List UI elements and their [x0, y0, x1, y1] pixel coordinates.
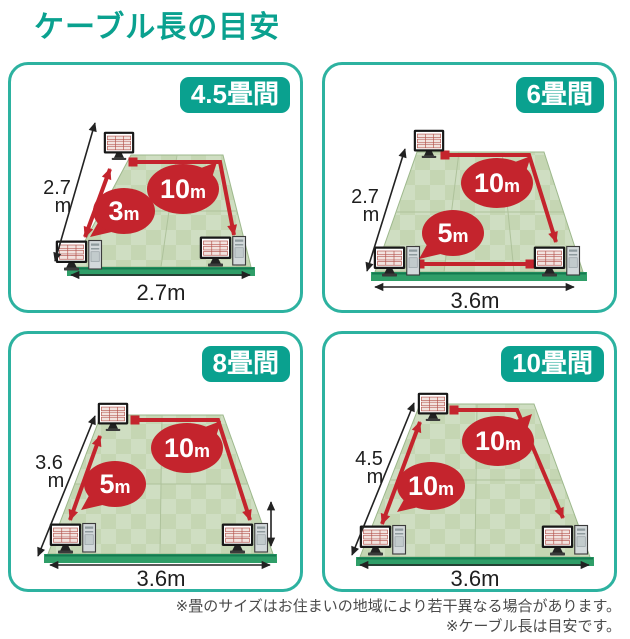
left-dimension-unit: m: [48, 470, 65, 492]
left-dimension-unit: m: [363, 204, 380, 226]
bottom-dimension-label: 3.6m: [451, 288, 500, 310]
panel-10-tatami: 10畳間 10m 10m 4.5 m: [322, 331, 617, 592]
room-size-label: 8畳間: [213, 348, 279, 378]
panel-6-tatami: 6畳間 5m 10m 2.7 m: [322, 62, 617, 313]
room-size-badge: 6畳間: [516, 77, 604, 113]
room-size-label: 10畳間: [512, 348, 593, 378]
room-size-badge: 10畳間: [501, 346, 604, 382]
panel-4-5-tatami: 4.5畳間 3m 10m 2.7 m: [8, 62, 303, 313]
footnote-tatami-size: ※畳のサイズはお住まいの地域により若干異なる場合があります。: [176, 597, 621, 617]
room-size-label: 4.5畳間: [191, 79, 279, 109]
bottom-dimension-label: 3.6m: [451, 566, 500, 589]
footnotes: ※畳のサイズはお住まいの地域により若干異なる場合があります。 ※ケーブル長は目安…: [176, 597, 621, 636]
room-size-label: 6畳間: [527, 79, 593, 109]
monitor-icon: [104, 132, 134, 160]
left-dimension-unit: m: [367, 466, 384, 488]
left-dimension-unit: m: [55, 195, 72, 217]
footnote-cable-length: ※ケーブル長は目安です。: [176, 617, 621, 637]
cable-length-infographic: ケーブル長の目安: [0, 0, 630, 639]
panel-8-tatami: 8畳間 5m 10m 3.6 m: [8, 331, 303, 592]
room-size-badge: 8畳間: [202, 346, 290, 382]
bottom-dimension-label: 2.7m: [137, 280, 186, 305]
room-size-badge: 4.5畳間: [180, 77, 290, 113]
page-title: ケーブル長の目安: [34, 2, 280, 46]
bottom-dimension-label: 3.6m: [137, 566, 186, 589]
